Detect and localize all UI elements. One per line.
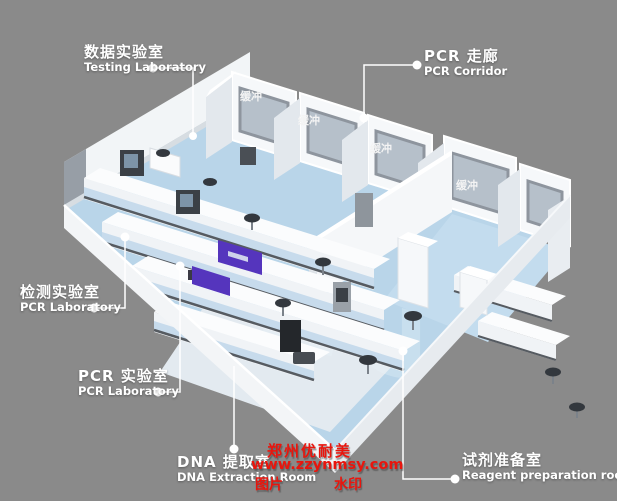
watermark-tag-left: 图片 (255, 474, 283, 494)
screenshot-stage: WU (0, 0, 617, 501)
callout-reagent-prep-en: Reagent preparation room (462, 469, 617, 482)
lab-3d-model: WU (0, 0, 617, 501)
callout-pcr-corridor-en: PCR Corridor (424, 65, 507, 78)
buffer-label-4: 缓冲 (456, 178, 478, 192)
callout-pcr-lab-bottom-en: PCR Laboratory (78, 385, 179, 398)
connector-pcr-corridor (360, 61, 422, 123)
watermark-tag-right: 水印 (334, 474, 362, 494)
callout-pcr-corridor-zh: PCR 走廊 (424, 48, 507, 65)
buffer-label-1: 缓冲 (240, 89, 262, 103)
callout-reagent-prep-zh: 试剂准备室 (462, 452, 617, 469)
watermark-url: www.zzynmsy.com (251, 457, 403, 473)
analyzer-3 (240, 147, 256, 165)
callout-pcr-lab-left-en: PCR Laboratory (20, 301, 121, 314)
callout-testing-lab-en: Testing Laboratory (84, 61, 206, 74)
callout-testing-lab-zh: 数据实验室 (84, 44, 206, 61)
callout-pcr-lab-bottom: PCR 实验室 PCR Laboratory (78, 368, 179, 398)
person-figure (188, 270, 192, 280)
callout-pcr-corridor: PCR 走廊 PCR Corridor (424, 48, 507, 78)
callout-dna-extraction-en: DNA Extraction Room (177, 471, 316, 484)
callout-testing-lab: 数据实验室 Testing Laboratory (84, 44, 206, 74)
buffer-label-3: 缓冲 (370, 141, 392, 155)
instrument-cabinet (355, 193, 373, 227)
callout-pcr-lab-left: 检测实验室 PCR Laboratory (20, 284, 121, 314)
callout-pcr-lab-left-zh: 检测实验室 (20, 284, 121, 301)
callout-pcr-lab-bottom-zh: PCR 实验室 (78, 368, 179, 385)
pegboard-rack (280, 320, 301, 352)
buffer-label-2: 缓冲 (298, 113, 320, 127)
bench-row-reagent-2 (478, 312, 570, 361)
callout-reagent-prep: 试剂准备室 Reagent preparation room (462, 452, 617, 482)
sink (293, 352, 315, 364)
